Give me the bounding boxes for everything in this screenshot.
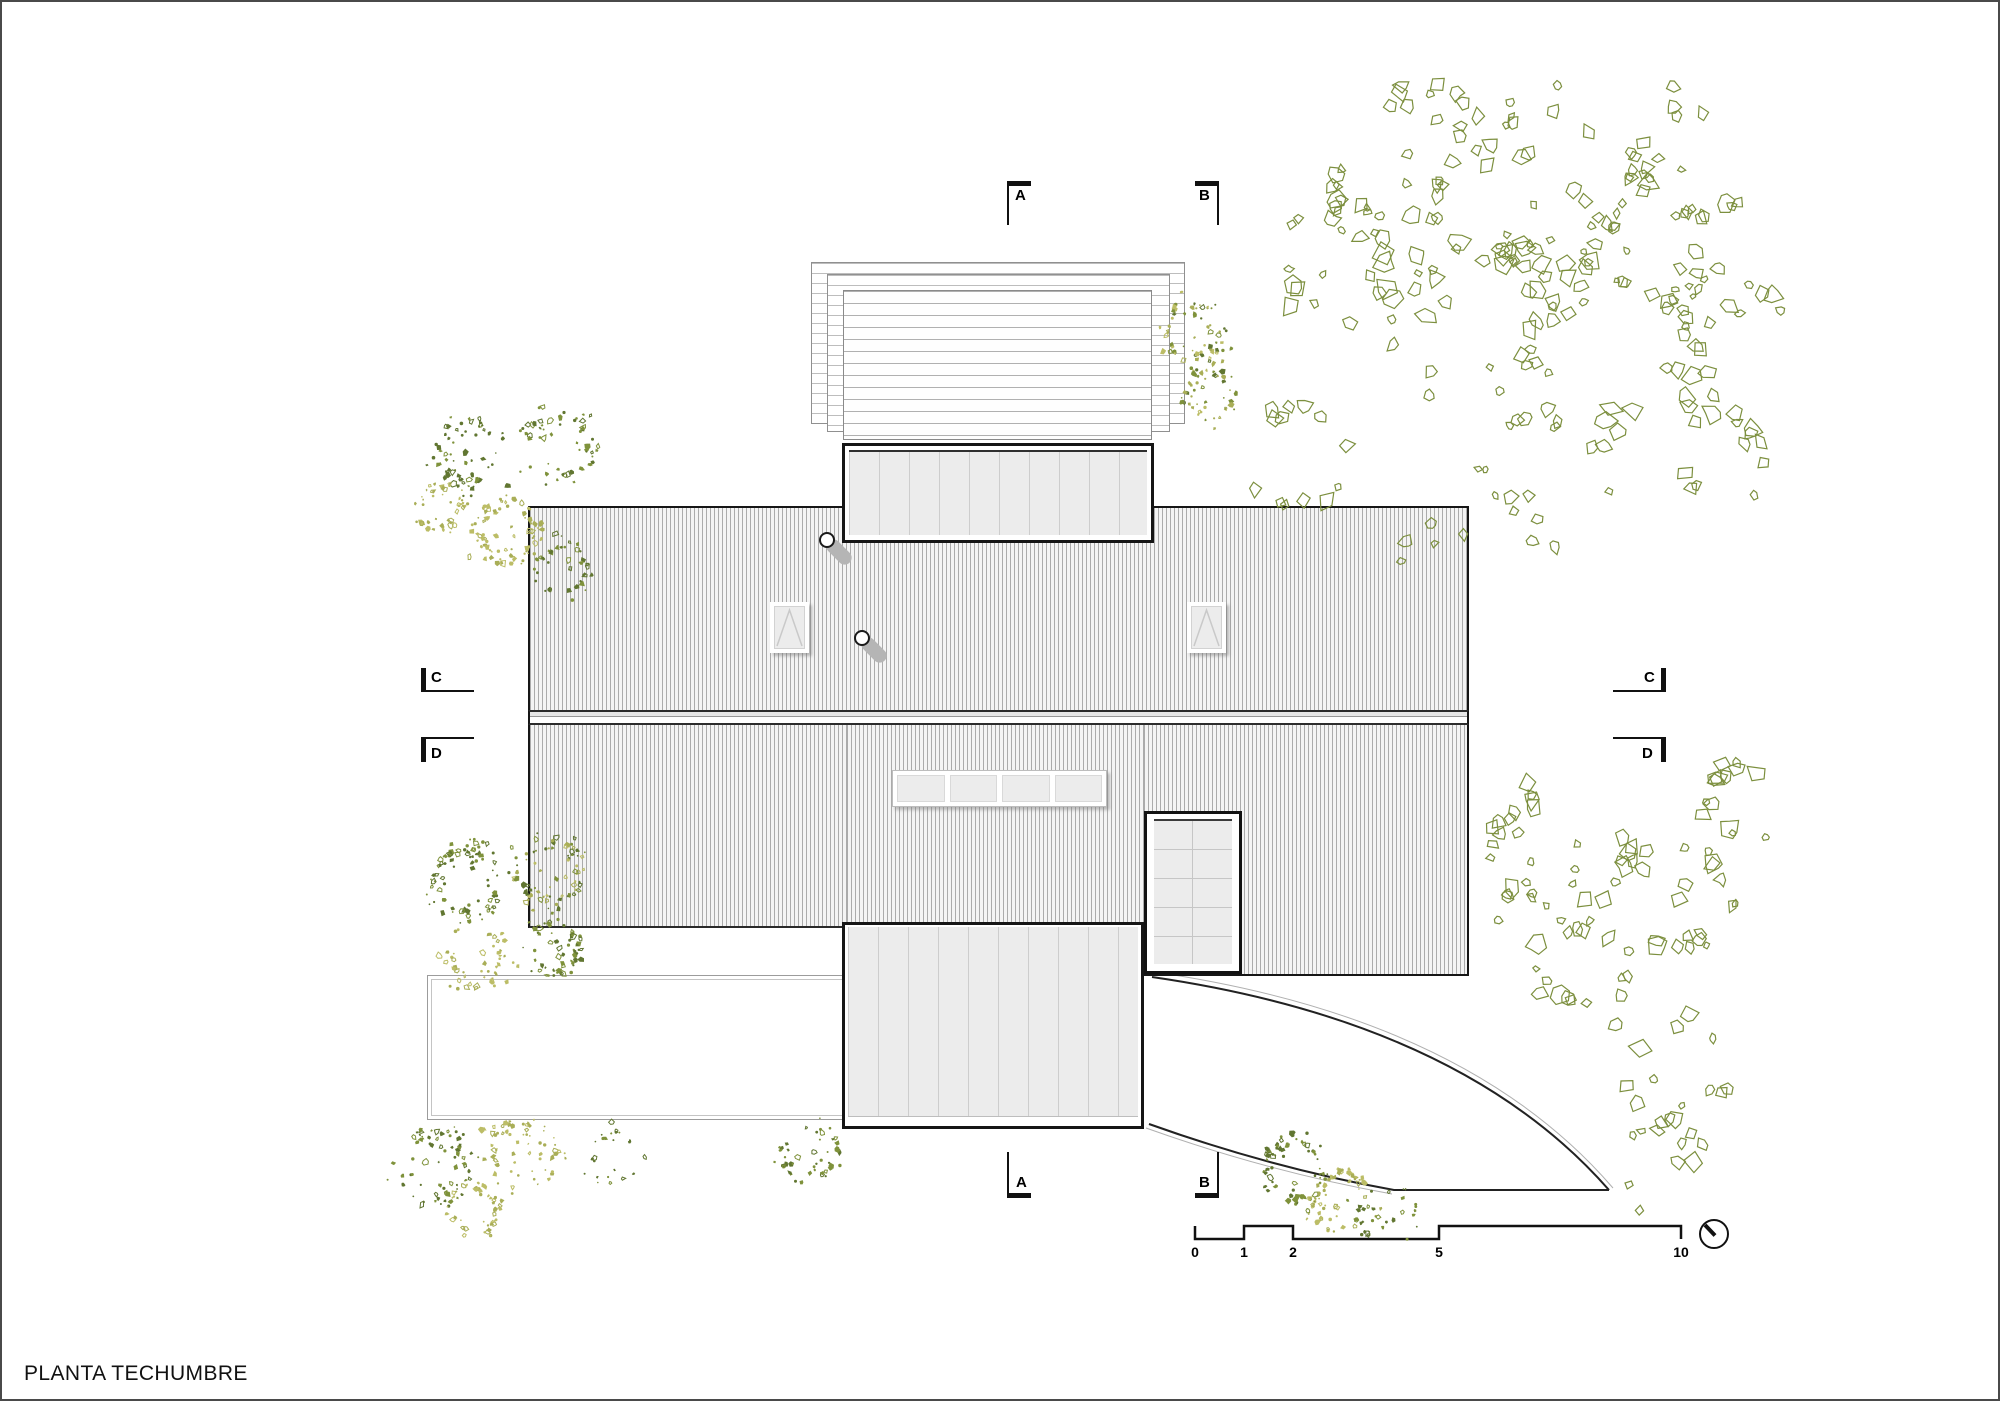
deck-lower (842, 922, 1144, 1129)
marker-stem (1007, 1152, 1009, 1197)
skylight-strip-panel (1002, 775, 1050, 802)
roof-window-right (1187, 602, 1226, 653)
deck-upper-planks (849, 450, 1147, 535)
plan-title: PLANTA TECHUMBRE (24, 1362, 248, 1386)
scale-bar (1187, 1217, 1697, 1247)
marker-stem (1007, 181, 1009, 225)
deck-upper (842, 443, 1154, 543)
scale-tick-label: 2 (1281, 1244, 1305, 1260)
terrace-inner-line (431, 979, 844, 1116)
north-symbol (1699, 1219, 1729, 1249)
pergola-inner-louvers (843, 290, 1152, 440)
deck-lower-planks (848, 927, 1138, 1117)
roof-lower-slope-middle (847, 725, 1144, 924)
marker-stem (1613, 737, 1666, 739)
skylight-grid-panes (1154, 819, 1232, 964)
marker-stem (1217, 181, 1219, 225)
section-label: A (1015, 188, 1026, 203)
marker-bar (1195, 1193, 1219, 1198)
skylight-strip-panel (897, 775, 945, 802)
vent-circle-2 (854, 630, 870, 646)
roof-window-opening-symbol (775, 607, 804, 648)
terrace-outline (427, 975, 848, 1120)
section-label: C (431, 670, 442, 685)
section-label: D (1642, 746, 1653, 761)
section-label: D (431, 746, 442, 761)
marker-stem (1613, 690, 1666, 692)
vent-circle-1 (819, 532, 835, 548)
roof-window-pane (774, 606, 805, 649)
skylight-strip-panel (950, 775, 998, 802)
scale-tick-label: 5 (1427, 1244, 1451, 1260)
marker-stem (421, 690, 474, 692)
section-label: B (1199, 188, 1210, 203)
section-label: A (1016, 1175, 1027, 1190)
roof-ridge-gutter (528, 710, 1469, 725)
marker-bar (1661, 737, 1666, 762)
marker-bar (1007, 1193, 1031, 1198)
skylight-strip (892, 770, 1107, 807)
roof-window-pane (1191, 606, 1222, 649)
marker-bar (1195, 181, 1219, 186)
scale-tick-label: 1 (1232, 1244, 1256, 1260)
roof-lower-slope-left (528, 725, 847, 928)
marker-stem (1217, 1152, 1219, 1197)
north-needle (1701, 1221, 1726, 1246)
scale-tick-label: 10 (1669, 1244, 1693, 1260)
marker-bar (1661, 668, 1666, 692)
scale-tick-label: 0 (1183, 1244, 1207, 1260)
roof-window-left (770, 602, 809, 653)
marker-bar (1007, 181, 1031, 186)
ramp-curve (1142, 962, 1622, 1202)
skylight-grid (1144, 811, 1242, 974)
marker-stem (421, 737, 474, 739)
section-label: B (1199, 1175, 1210, 1190)
marker-bar (421, 737, 426, 762)
skylight-strip-panel (1055, 775, 1103, 802)
drawing-sheet: A B A B C D C D 0 1 2 5 10 (0, 0, 2000, 1401)
roof-window-opening-symbol (1192, 607, 1221, 648)
marker-bar (421, 668, 426, 692)
section-label: C (1644, 670, 1655, 685)
